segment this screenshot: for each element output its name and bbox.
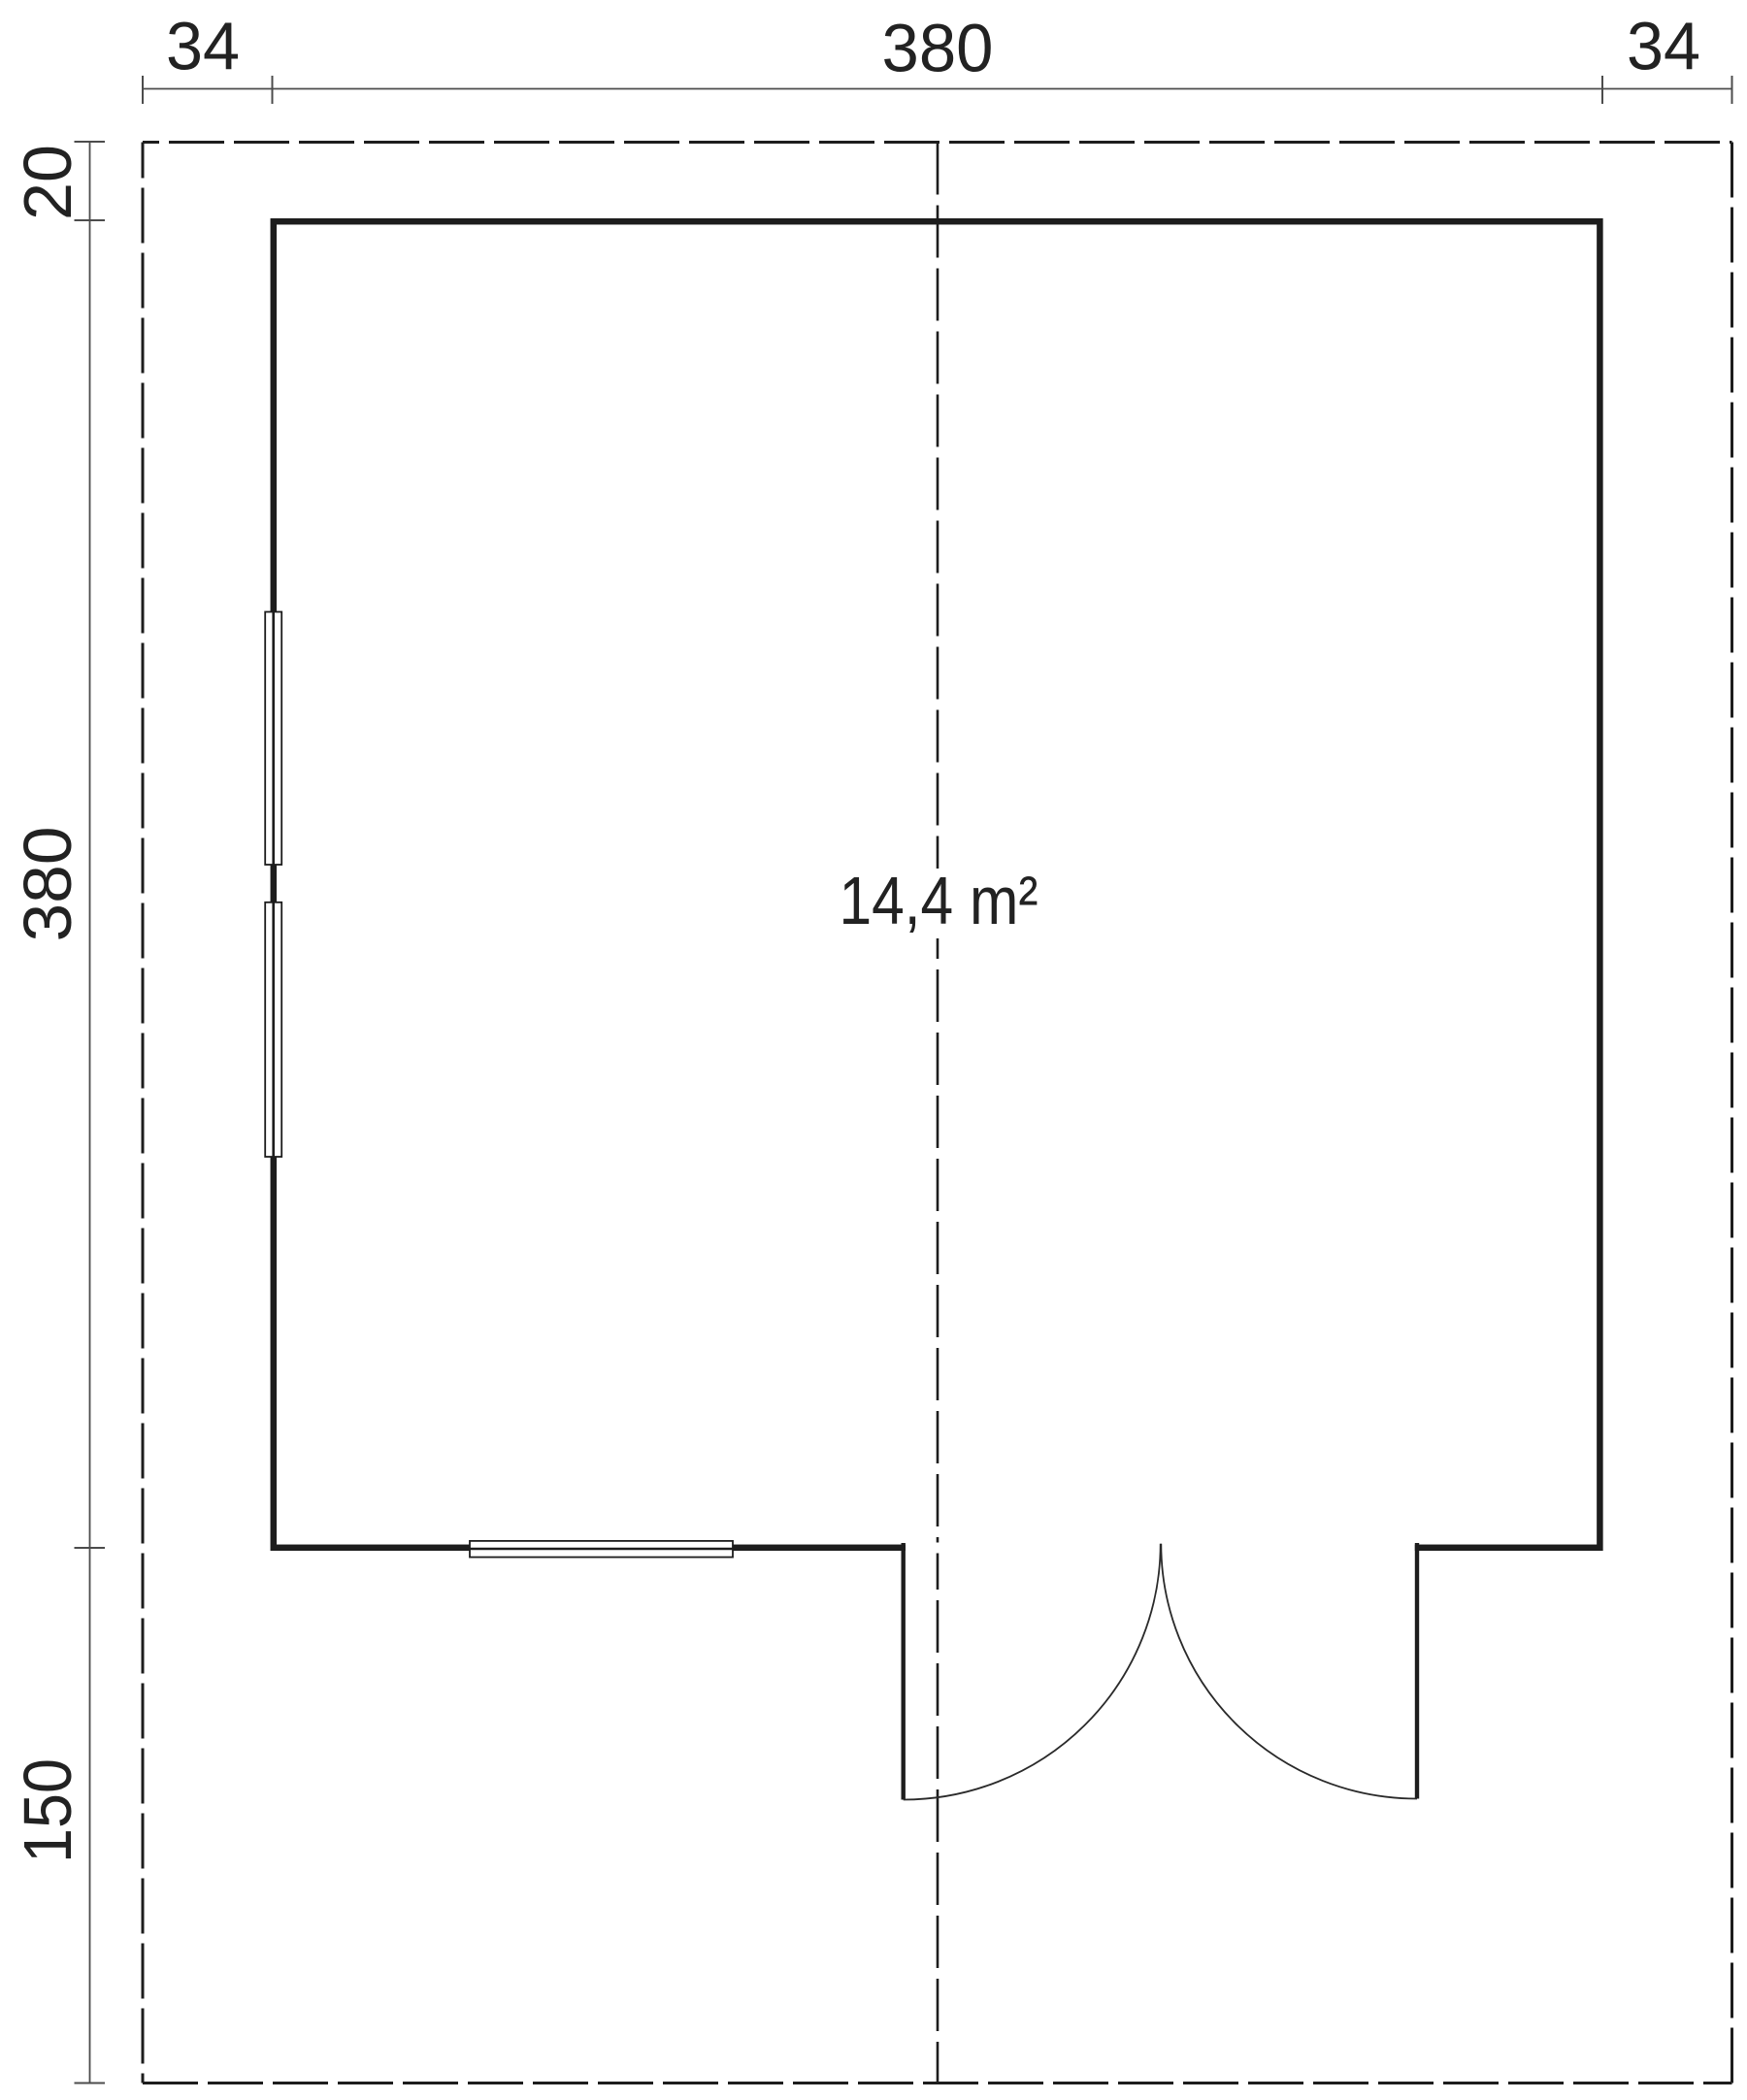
svg-text:34: 34 (1627, 9, 1700, 84)
svg-text:380: 380 (882, 11, 994, 86)
svg-text:14,4 m²: 14,4 m² (840, 863, 1038, 938)
svg-text:34: 34 (166, 9, 240, 84)
svg-text:150: 150 (10, 1758, 85, 1863)
svg-text:380: 380 (10, 827, 85, 942)
svg-text:20: 20 (10, 145, 85, 220)
